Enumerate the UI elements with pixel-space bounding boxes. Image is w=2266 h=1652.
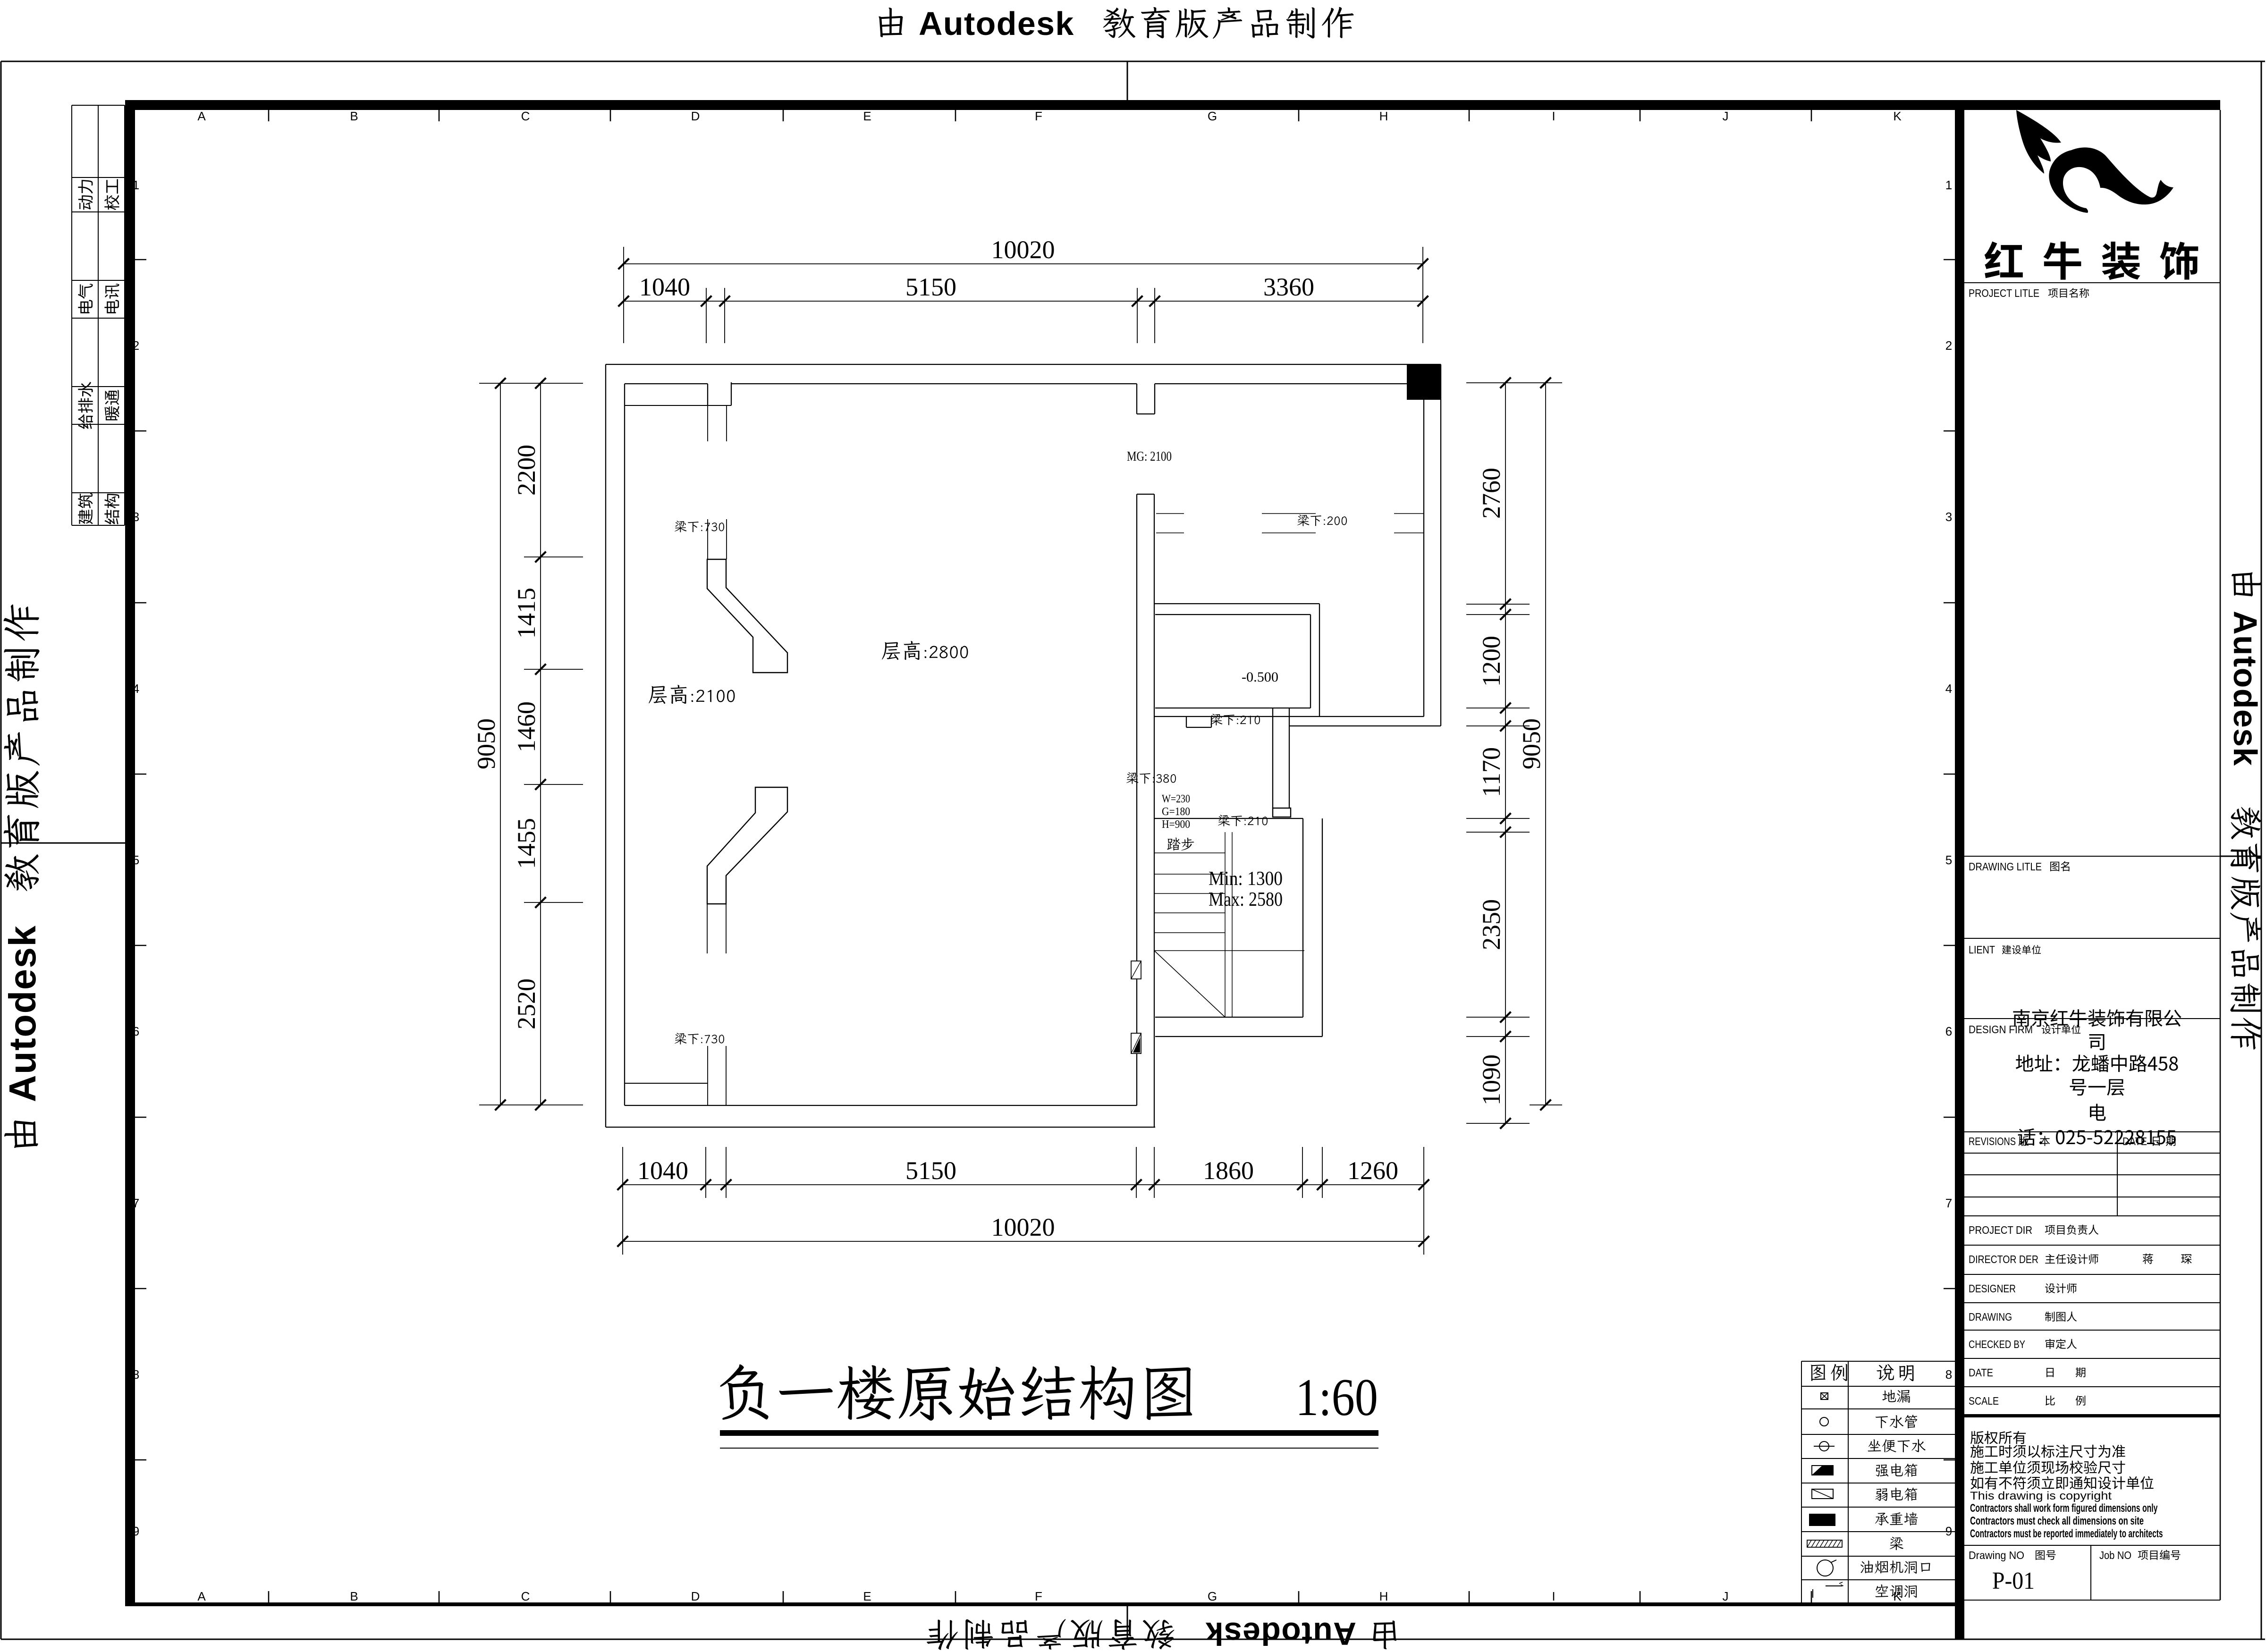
svg-text:H=900: H=900 [1162,818,1190,831]
svg-text:1415: 1415 [512,588,541,639]
svg-text:LIENT: LIENT [1969,944,1995,956]
svg-text:Drawing NO: Drawing NO [1969,1549,2024,1561]
svg-text:9050: 9050 [1517,718,1546,769]
svg-text:D: D [691,109,700,123]
svg-text:2520: 2520 [512,978,541,1029]
svg-text:Contractors shall work form fi: Contractors shall work form figured dime… [1970,1501,2158,1514]
svg-text:Job NO: Job NO [2099,1549,2131,1561]
svg-text:SCALE: SCALE [1969,1395,1999,1407]
svg-text:8: 8 [133,1367,139,1382]
svg-text:C: C [521,109,530,123]
svg-text:F: F [1035,109,1042,123]
svg-text:5: 5 [1945,853,1952,867]
svg-text:I: I [1552,1589,1555,1603]
svg-text:7: 7 [133,1196,139,1210]
svg-text:J: J [1723,1589,1729,1603]
svg-text:A: A [197,109,206,123]
svg-text:DATE: DATE [1969,1366,1993,1379]
svg-text:DIRECTOR DER: DIRECTOR DER [1969,1253,2038,1265]
svg-text:CHECKED BY: CHECKED BY [1969,1338,2025,1350]
svg-text:8: 8 [1945,1367,1952,1382]
svg-text:DRAWING: DRAWING [1969,1311,2012,1323]
svg-text:Autodesk: Autodesk [1205,1616,1356,1651]
svg-text:1170: 1170 [1477,747,1505,797]
svg-text:2: 2 [133,338,139,353]
svg-text:1040: 1040 [639,273,690,301]
svg-text:1460: 1460 [512,701,541,752]
svg-text:Autodesk: Autodesk [919,5,1074,42]
svg-text:1090: 1090 [1477,1054,1505,1105]
svg-text:Autodesk: Autodesk [2227,611,2264,767]
svg-text:B: B [350,1589,358,1603]
svg-text:A: A [197,1589,206,1603]
svg-text:This drawing is copyright: This drawing is copyright [1970,1490,2112,1502]
svg-text:1040: 1040 [637,1156,688,1185]
svg-text:DATE: DATE [2122,1135,2147,1147]
svg-text:9050: 9050 [472,718,500,769]
svg-text:G: G [1208,1589,1217,1603]
svg-text:PROJECT DIR: PROJECT DIR [1969,1224,2032,1236]
svg-text:H: H [1379,109,1388,123]
svg-text:H: H [1379,1589,1388,1603]
svg-text:B: B [350,109,358,123]
svg-text:Contractors must be reported i: Contractors must be reported immediately… [1970,1527,2163,1540]
svg-text:5: 5 [133,853,139,867]
svg-text:DESIGNER: DESIGNER [1969,1282,2016,1295]
svg-text:MG: 2100: MG: 2100 [1127,449,1172,464]
svg-text:G: G [1208,109,1217,123]
svg-text:1860: 1860 [1203,1156,1254,1185]
svg-text:2200: 2200 [512,445,541,496]
svg-text:K: K [1893,109,1902,123]
svg-text:1200: 1200 [1477,636,1505,687]
svg-text:W=230: W=230 [1162,793,1190,805]
svg-text:-0.500: -0.500 [1242,669,1278,685]
svg-text:3360: 3360 [1263,273,1314,301]
svg-text:F: F [1035,1589,1042,1603]
svg-text:2350: 2350 [1477,899,1505,950]
svg-text:J: J [1723,109,1729,123]
svg-text:G=180: G=180 [1162,806,1190,818]
svg-text:1: 1 [133,178,139,192]
svg-text:9: 9 [133,1524,139,1538]
svg-text:E: E [863,109,871,123]
svg-text:1455: 1455 [512,818,541,869]
svg-text:4: 4 [1945,682,1952,696]
svg-text:Max: 2580: Max: 2580 [1209,889,1283,910]
svg-text:I: I [1552,109,1555,123]
svg-text:6: 6 [133,1024,139,1038]
svg-text:5150: 5150 [905,1156,956,1185]
svg-text:REVISIONS: REVISIONS [1969,1135,2016,1147]
svg-text:4: 4 [133,682,139,696]
svg-text:7: 7 [1945,1196,1952,1210]
svg-text:6: 6 [1945,1024,1952,1038]
svg-text:D: D [691,1589,700,1603]
svg-text:1:60: 1:60 [1295,1368,1378,1427]
svg-text:2760: 2760 [1477,468,1505,519]
svg-text:10020: 10020 [991,236,1055,264]
svg-text:3: 3 [1945,510,1952,524]
svg-text:PROJECT LITLE: PROJECT LITLE [1969,287,2039,299]
svg-text:10020: 10020 [991,1213,1055,1241]
svg-text:C: C [521,1589,530,1603]
svg-text:2: 2 [1945,338,1952,353]
svg-text:3: 3 [133,510,139,524]
svg-text:P-01: P-01 [1992,1568,2035,1594]
svg-text:5150: 5150 [905,273,956,301]
svg-text:E: E [863,1589,871,1603]
svg-text:DRAWING LITLE: DRAWING LITLE [1969,860,2042,873]
svg-text:1: 1 [1945,178,1952,192]
svg-text:Autodesk: Autodesk [1,925,43,1102]
svg-text:Contractors must check all dim: Contractors must check all dimensions on… [1970,1514,2144,1527]
svg-text:1260: 1260 [1347,1156,1398,1185]
svg-text:Min: 1300: Min: 1300 [1209,868,1283,890]
svg-text:DESIGN FIRM: DESIGN FIRM [1969,1023,2033,1036]
